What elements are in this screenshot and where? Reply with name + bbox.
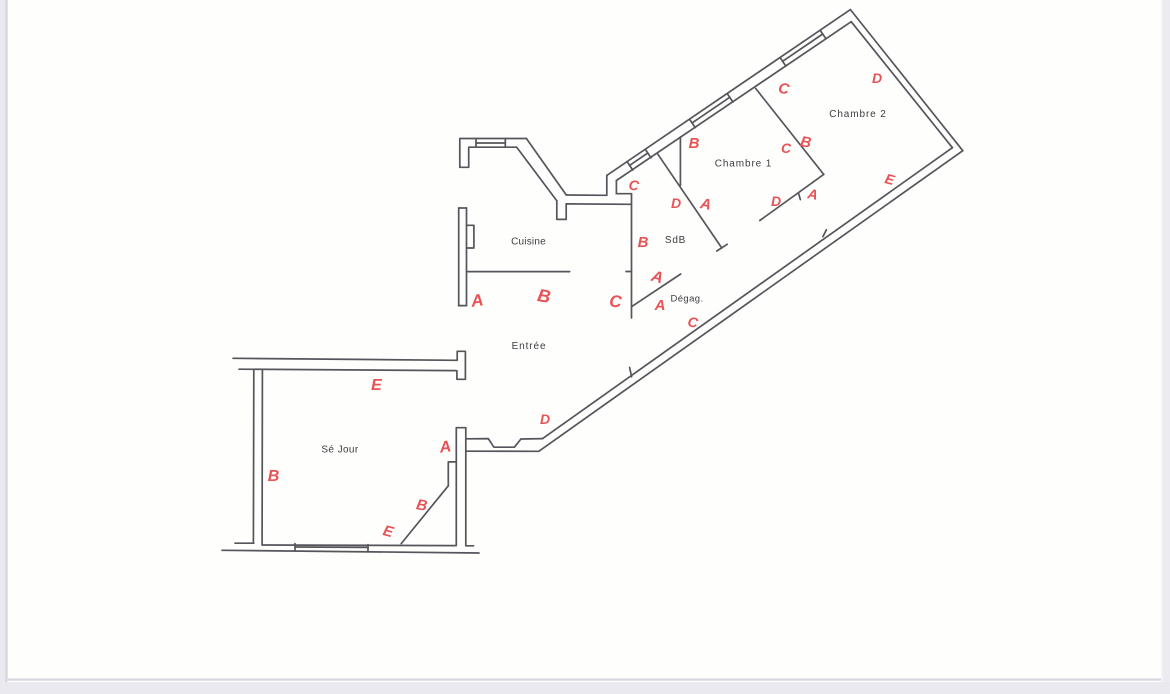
- svg-text:B: B: [689, 135, 700, 152]
- svg-text:D: D: [671, 195, 681, 211]
- svg-text:D: D: [540, 411, 550, 427]
- svg-text:A: A: [437, 438, 452, 457]
- svg-text:B: B: [268, 468, 280, 485]
- svg-text:SdB: SdB: [665, 235, 686, 246]
- svg-text:Cuisine: Cuisine: [511, 237, 546, 248]
- svg-text:E: E: [371, 377, 383, 394]
- svg-text:B: B: [638, 234, 649, 251]
- svg-text:D: D: [771, 193, 781, 209]
- svg-text:Sé Jour: Sé Jour: [321, 445, 359, 456]
- svg-text:C: C: [781, 140, 792, 156]
- svg-text:D: D: [872, 70, 882, 86]
- svg-text:Entrée: Entrée: [512, 341, 547, 352]
- svg-text:A: A: [469, 290, 485, 311]
- svg-text:A: A: [654, 297, 666, 314]
- svg-text:Dégag.: Dégag.: [670, 294, 703, 305]
- svg-text:Chambre 2: Chambre 2: [829, 109, 887, 120]
- svg-text:C: C: [609, 292, 624, 312]
- svg-text:Chambre 1: Chambre 1: [715, 159, 773, 170]
